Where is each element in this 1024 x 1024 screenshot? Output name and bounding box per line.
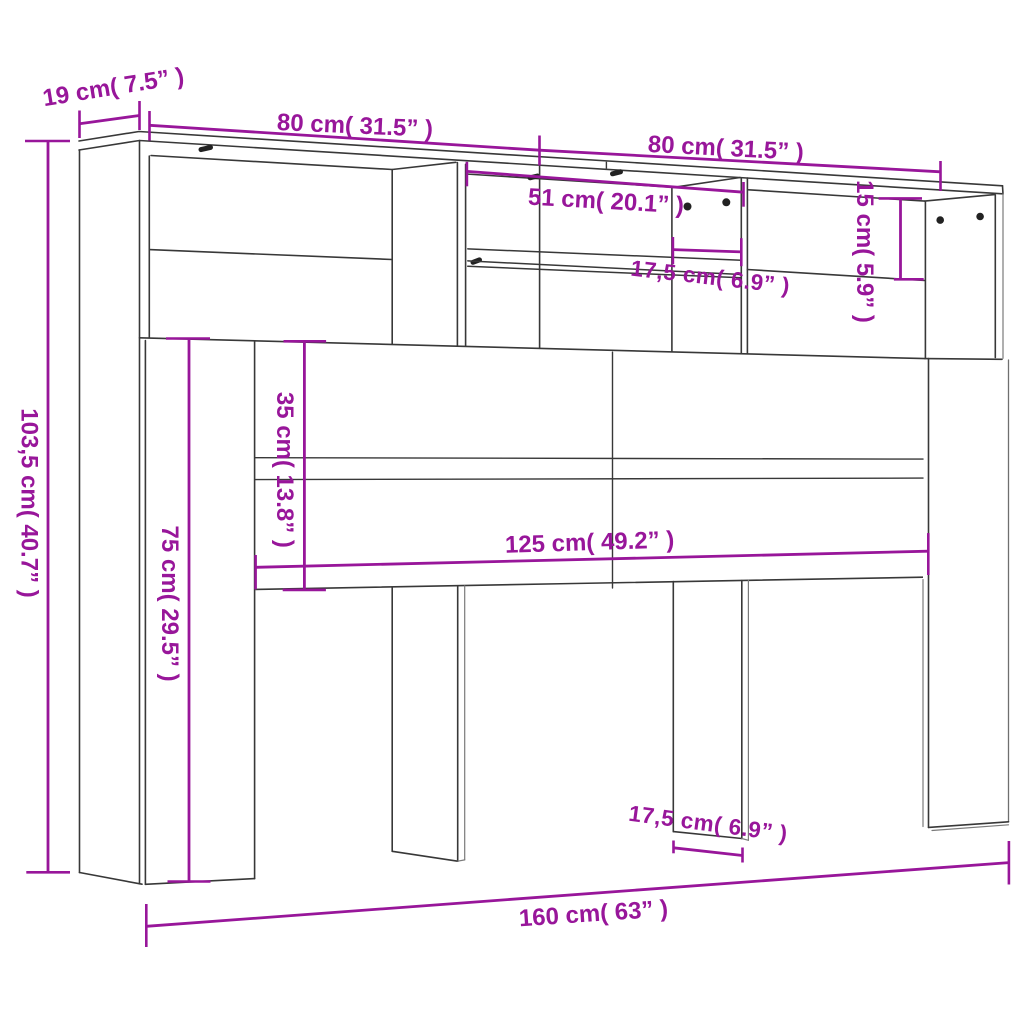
svg-text:103,5 cm( 40.7” ): 103,5 cm( 40.7” ) [15, 408, 42, 597]
svg-text:75 cm( 29.5” ): 75 cm( 29.5” ) [156, 526, 183, 682]
svg-text:35 cm( 13.8” ): 35 cm( 13.8” ) [271, 392, 298, 548]
svg-text:125 cm( 49.2” ): 125 cm( 49.2” ) [505, 526, 675, 558]
svg-text:15 cm( 5.9” ): 15 cm( 5.9” ) [851, 180, 878, 323]
